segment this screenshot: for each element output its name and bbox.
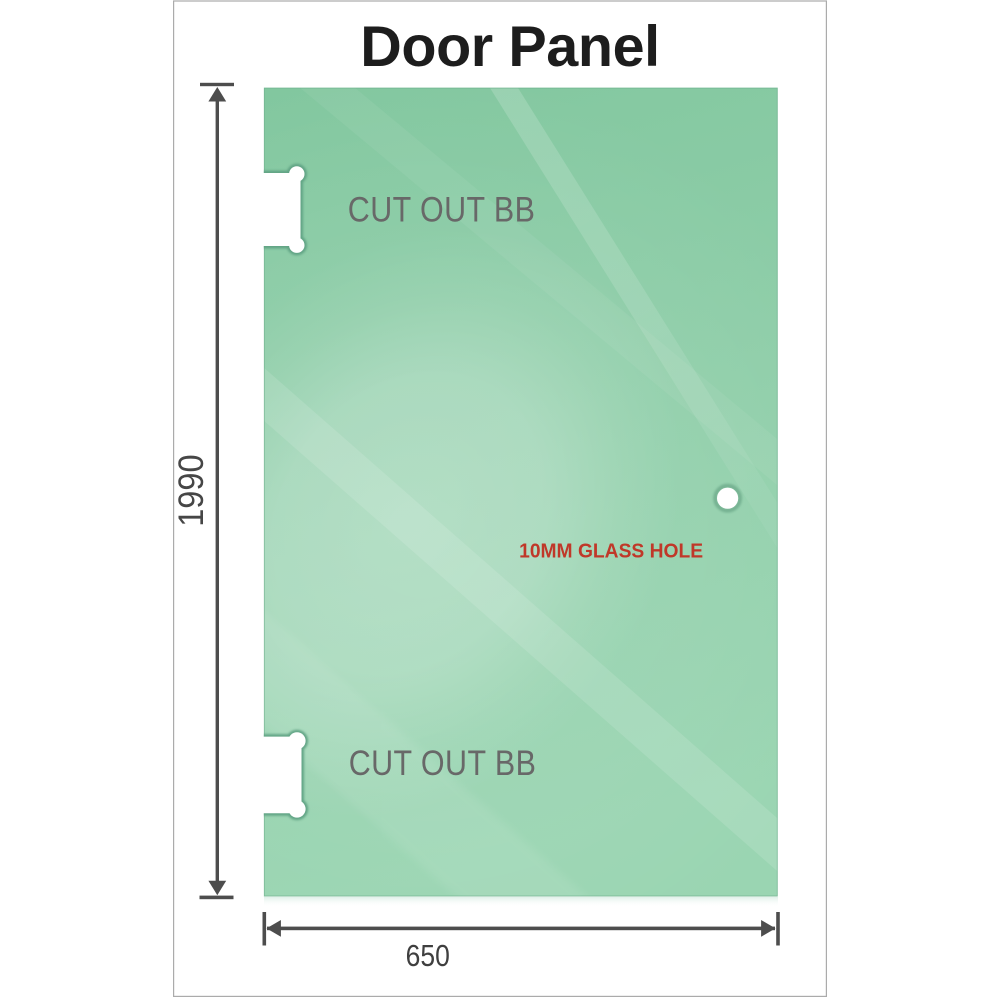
svg-text:1990: 1990 [172,454,211,526]
svg-text:10MM GLASS HOLE: 10MM GLASS HOLE [519,540,703,563]
svg-text:CUT OUT BB: CUT OUT BB [348,189,536,228]
svg-text:650: 650 [406,939,450,973]
svg-text:CUT OUT BB: CUT OUT BB [349,743,537,782]
svg-text:Door Panel: Door Panel [360,15,660,79]
